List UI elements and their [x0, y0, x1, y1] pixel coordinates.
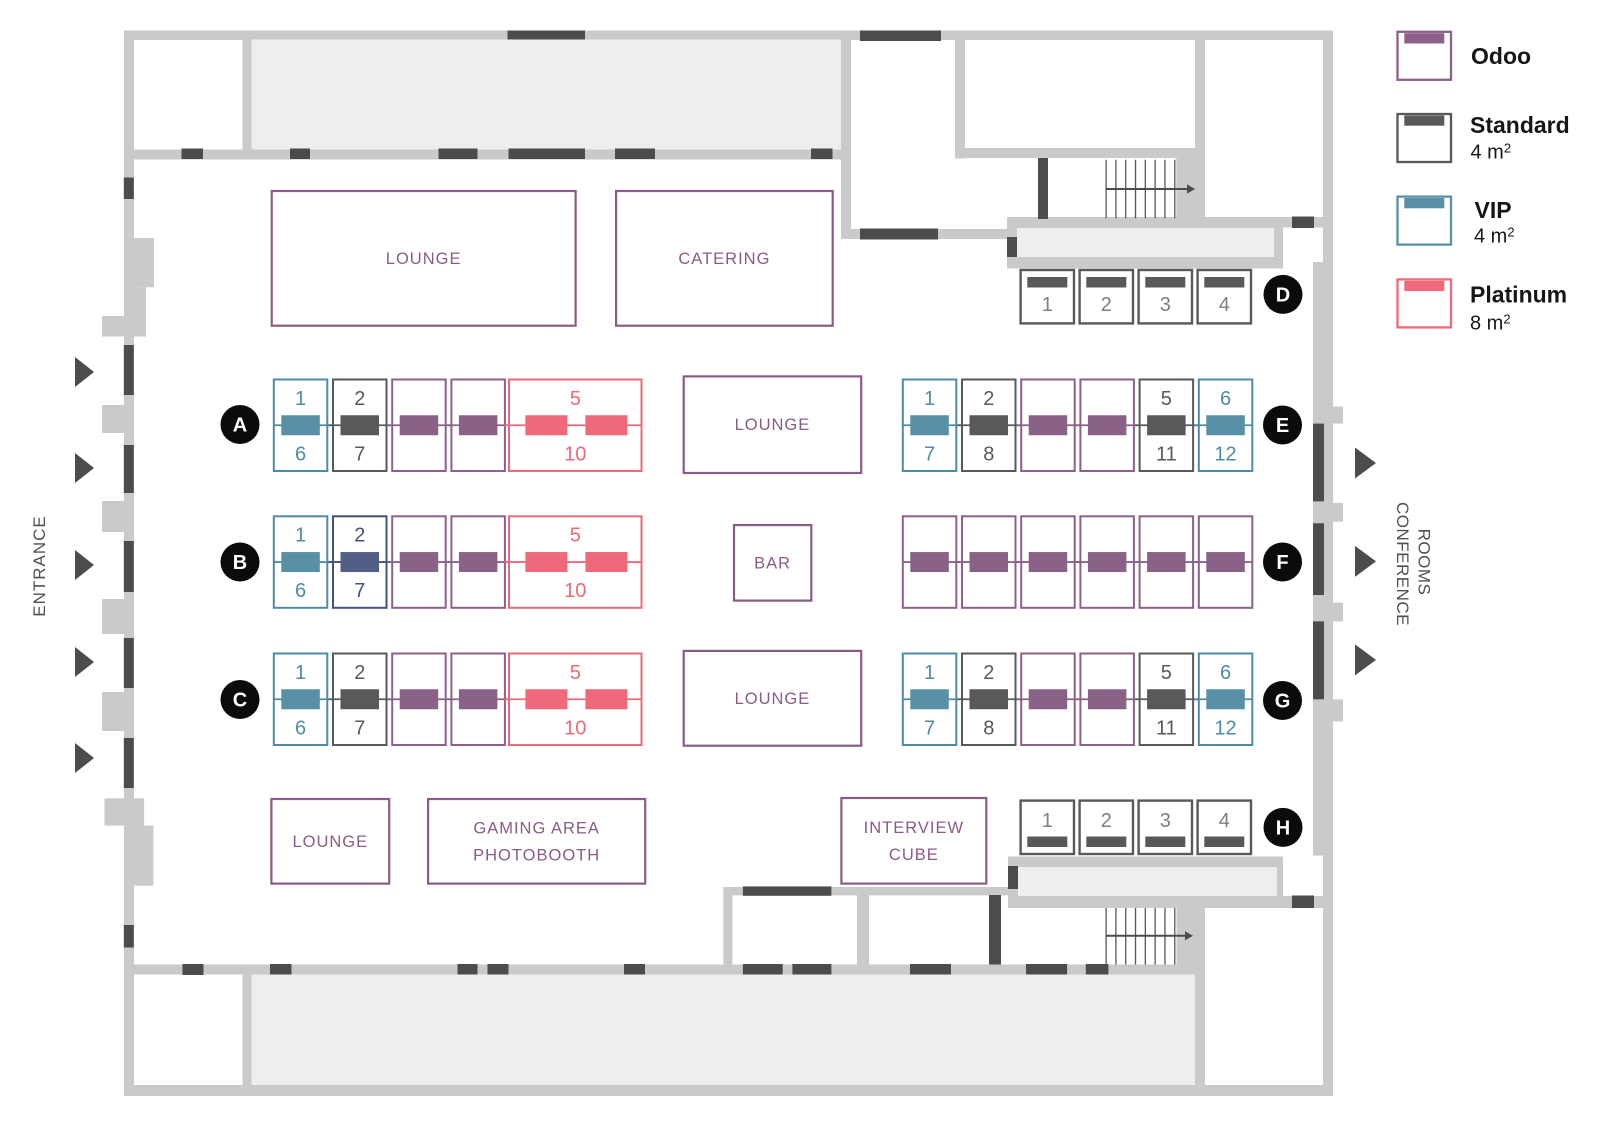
svg-text:5: 5 [1161, 662, 1172, 684]
svg-text:BAR: BAR [754, 554, 791, 572]
svg-text:7: 7 [354, 717, 365, 739]
svg-text:5: 5 [570, 388, 581, 410]
svg-text:11: 11 [1156, 443, 1177, 465]
svg-text:1: 1 [295, 525, 306, 547]
svg-text:2: 2 [983, 388, 994, 410]
svg-text:5: 5 [1161, 388, 1172, 410]
svg-text:LOUNGE: LOUNGE [386, 250, 462, 268]
svg-text:6: 6 [295, 443, 306, 465]
svg-text:5: 5 [570, 525, 581, 547]
svg-text:12: 12 [1214, 717, 1236, 739]
svg-text:6: 6 [1220, 662, 1231, 684]
svg-text:4: 4 [1219, 294, 1230, 316]
svg-text:12: 12 [1214, 443, 1236, 465]
svg-text:1: 1 [295, 662, 306, 684]
svg-text:INTERVIEW: INTERVIEW [864, 819, 964, 837]
svg-text:H: H [1276, 817, 1290, 839]
svg-text:1: 1 [1042, 810, 1053, 832]
svg-text:2: 2 [354, 388, 365, 410]
svg-text:B: B [233, 552, 247, 574]
svg-text:2: 2 [354, 662, 365, 684]
svg-text:2: 2 [1101, 810, 1112, 832]
svg-text:GAMING AREA: GAMING AREA [473, 819, 600, 837]
svg-text:2: 2 [983, 662, 994, 684]
svg-text:10: 10 [564, 580, 586, 602]
svg-text:8: 8 [983, 443, 994, 465]
svg-text:7: 7 [354, 580, 365, 602]
svg-text:1: 1 [1042, 294, 1053, 316]
svg-text:C: C [233, 690, 247, 712]
svg-text:ROOMS: ROOMS [1414, 529, 1433, 596]
svg-text:7: 7 [354, 443, 365, 465]
svg-text:1: 1 [924, 662, 935, 684]
svg-text:1: 1 [295, 388, 306, 410]
svg-text:LOUNGE: LOUNGE [292, 833, 368, 851]
svg-text:CONFERENCE: CONFERENCE [1393, 502, 1412, 626]
svg-text:LOUNGE: LOUNGE [735, 690, 811, 708]
svg-text:4: 4 [1219, 810, 1230, 832]
svg-text:6: 6 [1220, 388, 1231, 410]
svg-text:G: G [1275, 691, 1291, 713]
svg-text:VIP: VIP [1475, 197, 1512, 223]
svg-text:1: 1 [924, 388, 935, 410]
svg-text:10: 10 [564, 443, 586, 465]
svg-text:3: 3 [1160, 294, 1171, 316]
svg-text:10: 10 [564, 717, 586, 739]
svg-text:E: E [1276, 415, 1289, 437]
svg-text:7: 7 [924, 717, 935, 739]
svg-text:ENTRANCE: ENTRANCE [30, 515, 49, 617]
svg-text:LOUNGE: LOUNGE [735, 416, 811, 434]
svg-text:2: 2 [354, 525, 365, 547]
svg-text:6: 6 [295, 717, 306, 739]
svg-text:F: F [1276, 552, 1288, 574]
svg-text:Platinum: Platinum [1470, 282, 1567, 308]
svg-text:2: 2 [1101, 294, 1112, 316]
svg-text:A: A [233, 415, 247, 437]
svg-text:3: 3 [1160, 810, 1171, 832]
svg-text:Standard: Standard [1470, 112, 1570, 138]
svg-text:7: 7 [924, 443, 935, 465]
svg-text:CUBE: CUBE [889, 846, 939, 864]
svg-text:5: 5 [570, 662, 581, 684]
svg-text:11: 11 [1156, 717, 1177, 739]
svg-text:CATERING: CATERING [678, 250, 770, 268]
svg-text:6: 6 [295, 580, 306, 602]
svg-text:Odoo: Odoo [1471, 43, 1531, 69]
svg-text:PHOTOBOOTH: PHOTOBOOTH [473, 846, 600, 864]
svg-text:D: D [1276, 284, 1290, 306]
svg-text:8: 8 [983, 717, 994, 739]
